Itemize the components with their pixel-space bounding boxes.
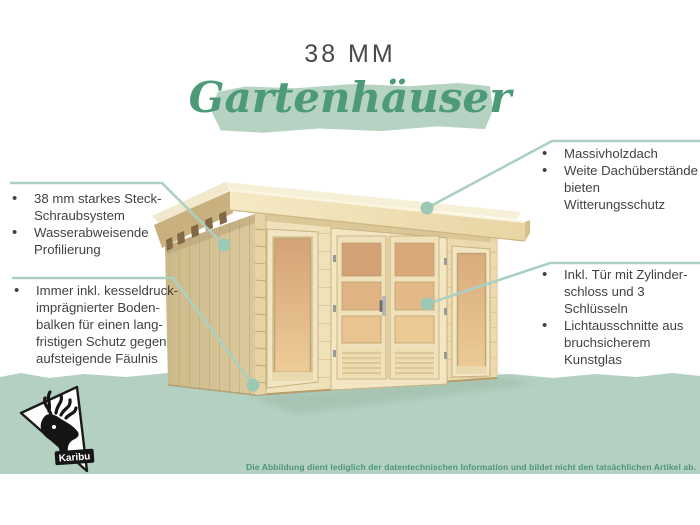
- feature-list-right-bottom: Inkl. Tür mit Zylinder- schloss und 3 Sc…: [540, 266, 700, 368]
- feature-item: Immer inkl. kesseldruck- imprägnierter B…: [12, 282, 197, 367]
- feature-item: 38 mm starkes Steck- Schraubsystem: [10, 190, 185, 224]
- right-window: [452, 246, 490, 377]
- feature-list-left-bottom: Immer inkl. kesseldruck- imprägnierter B…: [12, 282, 197, 367]
- feature-item: Massivholzdach: [540, 145, 700, 162]
- garden-house-illustration: Karibu: [0, 0, 700, 525]
- feature-item: Wasserabweisende Profilierung: [10, 224, 185, 258]
- left-window: [267, 229, 318, 388]
- left-window-glass: [275, 239, 310, 371]
- door-glass-panes-right: [395, 243, 434, 343]
- deer-eye: [52, 425, 56, 429]
- disclaimer-text: Die Abbildung dient lediglich der datent…: [246, 462, 696, 472]
- feature-list-left-top: 38 mm starkes Steck- Schraubsystem Wasse…: [10, 190, 185, 258]
- callout-dot-roof: [421, 202, 434, 215]
- door-glass-panes-left: [342, 243, 381, 343]
- feature-item: Weite Dachüberstände bieten Witterungssc…: [540, 162, 700, 213]
- feature-item: Lichtausschnitte aus bruchsicherem Kunst…: [540, 317, 700, 368]
- karibu-logo: Karibu: [21, 387, 94, 471]
- feature-item: Inkl. Tür mit Zylinder- schloss und 3 Sc…: [540, 266, 700, 317]
- brand-logo-label: Karibu: [58, 451, 90, 464]
- infographic-canvas: 38 MM Gartenhäuser: [0, 0, 700, 525]
- right-window-glass: [458, 254, 485, 366]
- feature-list-right-top: Massivholzdach Weite Dachüberstände biet…: [540, 145, 700, 213]
- callout-dot-base: [247, 379, 260, 392]
- callout-dot-rafters: [218, 239, 231, 252]
- callout-dot-door-glass: [421, 298, 434, 311]
